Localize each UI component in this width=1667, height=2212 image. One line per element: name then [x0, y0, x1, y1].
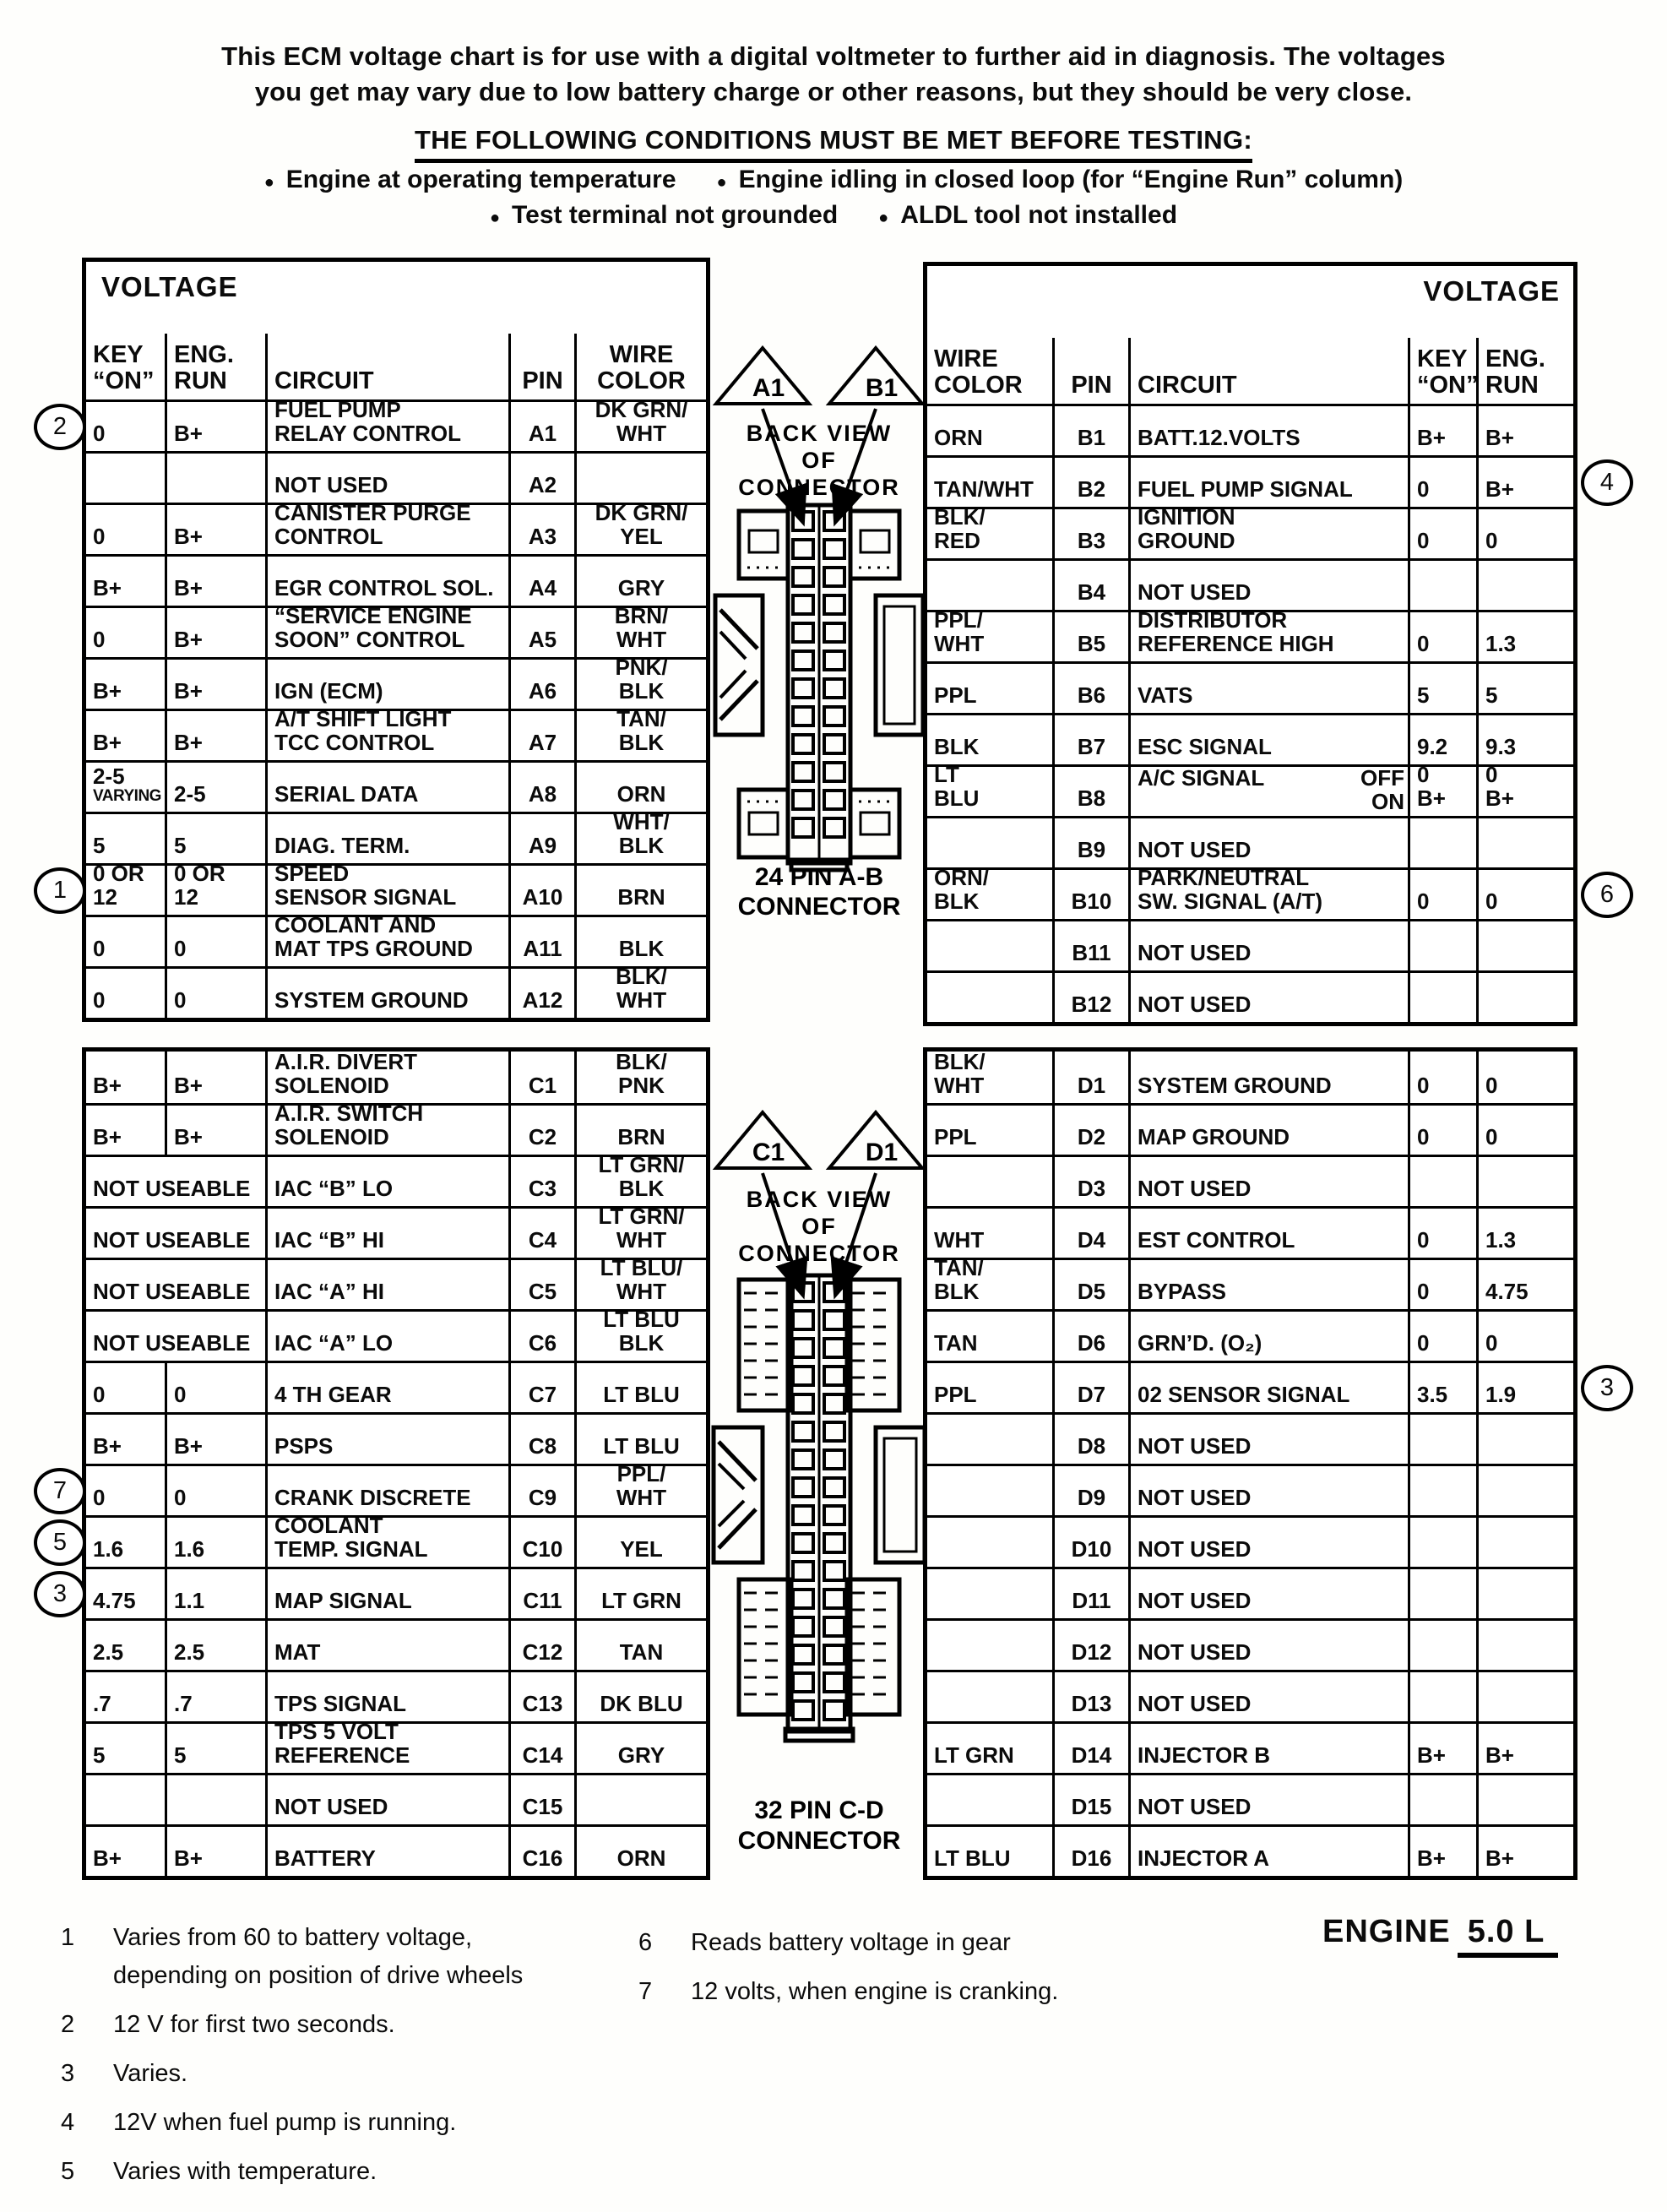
col-header-eng: ENG. RUN	[1476, 338, 1573, 404]
cell-a12-eng: 0	[165, 966, 265, 1018]
cell-c3-pin: C3	[508, 1155, 574, 1206]
cell-c11-pin: C11	[508, 1567, 574, 1618]
condition-text: Engine idling in closed loop (for “Engin…	[739, 166, 1404, 194]
cell-d11-wire	[927, 1567, 1052, 1618]
cd-back-view-2: OF	[801, 1214, 837, 1239]
cell-c3-circuit: IAC “B” LO	[265, 1155, 508, 1206]
cell-b11-pin: B11	[1052, 919, 1128, 970]
col-header-pin: PIN	[1052, 338, 1128, 404]
cell-a2-pin: A2	[508, 451, 574, 503]
cell-c12-key: 2.5	[86, 1618, 165, 1670]
cell-b6-pin: B6	[1052, 661, 1128, 713]
cell-c1-key: B+	[86, 1052, 165, 1103]
cell-a12-circuit: SYSTEM GROUND	[265, 966, 508, 1018]
ab-back-view-3: CONNECTOR	[738, 475, 900, 500]
cell-b8-key: 0 B+	[1408, 764, 1476, 816]
cell-c11-circuit: MAP SIGNAL	[265, 1567, 508, 1618]
col-header-eng: ENG. RUN	[165, 334, 265, 399]
cell-c9-pin: C9	[508, 1464, 574, 1515]
cell-c6-wire: LT BLU BLK	[574, 1309, 706, 1361]
cell-c12-circuit: MAT	[265, 1618, 508, 1670]
callout-circle-1-a10: 1	[34, 867, 86, 914]
cell-d3-key	[1408, 1155, 1476, 1206]
conditions-title: THE FOLLOWING CONDITIONS MUST BE MET BEF…	[415, 125, 1252, 163]
cell-b4-pin: B4	[1052, 558, 1128, 610]
cell-c7-key: 0	[86, 1361, 165, 1412]
cell-d1-circuit: SYSTEM GROUND	[1128, 1052, 1408, 1103]
cell-c16-eng: B+	[165, 1824, 265, 1876]
col-header-circuit: CIRCUIT	[1128, 338, 1408, 404]
connector-diagram-cd: C1 D1 BACK VIEW OF CONNECTOR	[709, 1102, 929, 1867]
cell-a1-pin: A1	[508, 399, 574, 451]
cell-a3-eng: B+	[165, 503, 265, 554]
footnote-text: Varies.	[113, 2055, 187, 2093]
cell-a12-wire: BLK/ WHT	[574, 966, 706, 1018]
cell-c3-wire: LT GRN/ BLK	[574, 1155, 706, 1206]
cell-d3-pin: D3	[1052, 1155, 1128, 1206]
cell-d6-key: 0	[1408, 1309, 1476, 1361]
footnote-text: 12 volts, when engine is cranking.	[691, 1973, 1058, 2011]
footnote-number: 6	[638, 1924, 667, 1962]
cell-c8-key: B+	[86, 1412, 165, 1464]
cell-d11-key	[1408, 1567, 1476, 1618]
col-header-pin: PIN	[508, 334, 574, 399]
footnote-1: 1Varies from 60 to battery voltage, depe…	[61, 1919, 635, 1995]
cell-b4-wire	[927, 558, 1052, 610]
callout-circle-6-b10: 6	[1581, 872, 1633, 918]
cell-b9-wire	[927, 816, 1052, 867]
footnote-text: 12 V for first two seconds.	[113, 2006, 395, 2044]
callout-circle-2-a1: 2	[34, 404, 86, 450]
col-header-circuit: CIRCUIT	[265, 334, 508, 399]
cell-a8-wire: ORN	[574, 760, 706, 812]
ab-connector-label-2: CONNECTOR	[738, 893, 901, 921]
triangle-a1-label: A1	[752, 374, 785, 402]
cell-a6-key: B+	[86, 657, 165, 709]
cell-a4-eng: B+	[165, 554, 265, 606]
cell-d13-eng	[1476, 1670, 1573, 1721]
col-header-key: KEY “ON”	[86, 334, 165, 399]
cell-b10-pin: B10	[1052, 867, 1128, 919]
cell-a12-pin: A12	[508, 966, 574, 1018]
cell-b2-wire: TAN/WHT	[927, 455, 1052, 507]
cell-b1-circuit: BATT.12.VOLTS	[1128, 404, 1408, 455]
cell-b11-eng	[1476, 919, 1573, 970]
cell-c13-circuit: TPS SIGNAL	[265, 1670, 508, 1721]
cell-c2-pin: C2	[508, 1103, 574, 1155]
cell-a9-circuit: DIAG. TERM.	[265, 812, 508, 863]
cell-a1-wire: DK GRN/ WHT	[574, 399, 706, 451]
cell-a10-wire: BRN	[574, 863, 706, 915]
cell-d9-eng	[1476, 1464, 1573, 1515]
col-header-key: KEY “ON”	[1408, 338, 1476, 404]
cell-c12-wire: TAN	[574, 1618, 706, 1670]
voltage-table-a: VOLTAGEKEY “ON”ENG. RUNCIRCUITPINWIRE CO…	[82, 258, 710, 1022]
cell-a6-pin: A6	[508, 657, 574, 709]
footnote-number: 3	[61, 2055, 90, 2093]
cell-b3-circuit: IGNITION GROUND	[1128, 507, 1408, 558]
cell-d5-circuit: BYPASS	[1128, 1258, 1408, 1309]
cell-d10-key	[1408, 1515, 1476, 1567]
cell-d3-circuit: NOT USED	[1128, 1155, 1408, 1206]
cell-b10-wire: ORN/ BLK	[927, 867, 1052, 919]
condition-bullet: ●Test terminal not grounded	[490, 201, 838, 230]
cell-d12-eng	[1476, 1618, 1573, 1670]
cell-b1-eng: B+	[1476, 404, 1573, 455]
cell-a7-wire: TAN/ BLK	[574, 709, 706, 760]
cell-b6-wire: PPL	[927, 661, 1052, 713]
cell-d8-key	[1408, 1412, 1476, 1464]
cell-d16-eng: B+	[1476, 1824, 1573, 1876]
col-header-wire: WIRE COLOR	[574, 334, 706, 399]
cell-b6-circuit: VATS	[1128, 661, 1408, 713]
cell-c7-eng: 0	[165, 1361, 265, 1412]
cell-a4-wire: GRY	[574, 554, 706, 606]
cell-b4-key	[1408, 558, 1476, 610]
cell-a3-wire: DK GRN/ YEL	[574, 503, 706, 554]
cell-b7-circuit: ESC SIGNAL	[1128, 713, 1408, 764]
cell-c2-wire: BRN	[574, 1103, 706, 1155]
footnote-number: 2	[61, 2006, 90, 2044]
engine-size-value: 5.0 L	[1458, 1914, 1559, 1958]
cell-c10-wire: YEL	[574, 1515, 706, 1567]
cell-c16-circuit: BATTERY	[265, 1824, 508, 1876]
condition-bullet: ●Engine at operating temperature	[264, 166, 676, 194]
cell-b2-key: 0	[1408, 455, 1476, 507]
cell-a1-eng: B+	[165, 399, 265, 451]
cell-d15-key	[1408, 1773, 1476, 1824]
cell-a11-eng: 0	[165, 915, 265, 966]
cell-d2-key: 0	[1408, 1103, 1476, 1155]
cell-b7-pin: B7	[1052, 713, 1128, 764]
voltage-table-d: BLK/ WHTD1SYSTEM GROUND00PPLD2MAP GROUND…	[923, 1047, 1577, 1880]
cell-d2-wire: PPL	[927, 1103, 1052, 1155]
cell-b1-pin: B1	[1052, 404, 1128, 455]
cell-d5-eng: 4.75	[1476, 1258, 1573, 1309]
cell-a10-circuit: SPEED SENSOR SIGNAL	[265, 863, 508, 915]
cell-c14-circuit: TPS 5 VOLT REFERENCE	[265, 1721, 508, 1773]
cell-d2-pin: D2	[1052, 1103, 1128, 1155]
cell-d10-wire	[927, 1515, 1052, 1567]
footnote-number: 1	[61, 1919, 90, 1995]
cell-b9-circuit: NOT USED	[1128, 816, 1408, 867]
cell-c13-key: .7	[86, 1670, 165, 1721]
cell-b5-circuit: DISTRIBUTOR REFERENCE HIGH	[1128, 610, 1408, 661]
cell-b12-wire	[927, 970, 1052, 1022]
cell-a6-eng: B+	[165, 657, 265, 709]
cell-d5-key: 0	[1408, 1258, 1476, 1309]
cell-d15-wire	[927, 1773, 1052, 1824]
cell-c2-circuit: A.I.R. SWITCH SOLENOID	[265, 1103, 508, 1155]
cell-b8-pin: B8	[1052, 764, 1128, 816]
cell-a6-wire: PNK/ BLK	[574, 657, 706, 709]
cell-b12-pin: B12	[1052, 970, 1128, 1022]
cell-a10-pin: A10	[508, 863, 574, 915]
cell-d16-circuit: INJECTOR A	[1128, 1824, 1408, 1876]
footnotes-left: 1Varies from 60 to battery voltage, depe…	[61, 1919, 635, 2202]
cell-b2-pin: B2	[1052, 455, 1128, 507]
voltage-heading: VOLTAGE	[86, 262, 706, 334]
cell-a8-key: 2-5VARYING	[86, 760, 165, 812]
cell-b3-key: 0	[1408, 507, 1476, 558]
cell-d10-pin: D10	[1052, 1515, 1128, 1567]
cell-b3-pin: B3	[1052, 507, 1128, 558]
cd-connector-body	[714, 1275, 925, 1741]
cell-a5-wire: BRN/ WHT	[574, 606, 706, 657]
cell-c11-key: 4.75	[86, 1567, 165, 1618]
cell-c9-key: 0	[86, 1464, 165, 1515]
cell-c13-eng: .7	[165, 1670, 265, 1721]
footnote-number: 4	[61, 2104, 90, 2142]
cell-d6-eng: 0	[1476, 1309, 1573, 1361]
footnote-text: 12V when fuel pump is running.	[113, 2104, 456, 2142]
cell-a2-circuit: NOT USED	[265, 451, 508, 503]
cell-d7-eng: 1.9	[1476, 1361, 1573, 1412]
cell-c2-eng: B+	[165, 1103, 265, 1155]
cell-d10-circuit: NOT USED	[1128, 1515, 1408, 1567]
cell-c15-circuit: NOT USED	[265, 1773, 508, 1824]
cell-b5-wire: PPL/ WHT	[927, 610, 1052, 661]
cell-b3-wire: BLK/ RED	[927, 507, 1052, 558]
cell-c6-key: NOT USEABLE	[86, 1309, 265, 1361]
cell-b3-eng: 0	[1476, 507, 1573, 558]
cell-c5-key: NOT USEABLE	[86, 1258, 265, 1309]
cd-connector-label-1: 32 PIN C-D	[754, 1796, 883, 1824]
cell-a5-eng: B+	[165, 606, 265, 657]
cell-c12-pin: C12	[508, 1618, 574, 1670]
cell-c5-pin: C5	[508, 1258, 574, 1309]
cell-d9-wire	[927, 1464, 1052, 1515]
cell-a7-pin: A7	[508, 709, 574, 760]
cell-b8-circuit: A/C SIGNALOFF ON	[1128, 764, 1408, 816]
cell-b12-circuit: NOT USED	[1128, 970, 1408, 1022]
cell-b2-eng: B+	[1476, 455, 1573, 507]
cell-d1-eng: 0	[1476, 1052, 1573, 1103]
voltage-table-b: VOLTAGEWIRE COLORPINCIRCUITKEY “ON”ENG. …	[923, 262, 1577, 1026]
cell-a8-eng: 2-5	[165, 760, 265, 812]
cell-c5-wire: LT BLU/ WHT	[574, 1258, 706, 1309]
footnote-4: 412V when fuel pump is running.	[61, 2104, 635, 2142]
cell-c9-wire: PPL/ WHT	[574, 1464, 706, 1515]
cell-a4-key: B+	[86, 554, 165, 606]
intro-text: This ECM voltage chart is for use with a…	[0, 39, 1667, 109]
cell-a11-wire: BLK	[574, 915, 706, 966]
cell-c8-wire: LT BLU	[574, 1412, 706, 1464]
cell-d9-key	[1408, 1464, 1476, 1515]
cell-c11-eng: 1.1	[165, 1567, 265, 1618]
cell-d4-pin: D4	[1052, 1206, 1128, 1258]
condition-bullet: ●Engine idling in closed loop (for “Engi…	[717, 166, 1404, 194]
engine-word: ENGINE	[1322, 1914, 1451, 1950]
cell-c1-pin: C1	[508, 1052, 574, 1103]
bullet-dot-icon: ●	[264, 173, 274, 193]
callout-circle-7-c9: 7	[34, 1468, 86, 1514]
ab-connector-body	[715, 505, 923, 870]
footnote-3: 3Varies.	[61, 2055, 635, 2093]
cell-b2-circuit: FUEL PUMP SIGNAL	[1128, 455, 1408, 507]
cell-c14-wire: GRY	[574, 1721, 706, 1773]
cell-d11-eng	[1476, 1567, 1573, 1618]
ecm-voltage-chart-page: This ECM voltage chart is for use with a…	[0, 0, 1667, 2212]
condition-bullet: ●ALDL tool not installed	[878, 201, 1177, 230]
cell-a3-circuit: CANISTER PURGE CONTROL	[265, 503, 508, 554]
cell-d7-wire: PPL	[927, 1361, 1052, 1412]
voltage-table-c: B+B+A.I.R. DIVERT SOLENOIDC1BLK/ PNKB+B+…	[82, 1047, 710, 1880]
connector-diagram-ab: A1 B1 BACK VIEW OF CONNECTOR	[709, 338, 929, 921]
cell-d1-key: 0	[1408, 1052, 1476, 1103]
cell-c7-circuit: 4 TH GEAR	[265, 1361, 508, 1412]
condition-text: Test terminal not grounded	[512, 201, 838, 230]
callout-circle-4-b2: 4	[1581, 459, 1633, 506]
cell-a7-eng: B+	[165, 709, 265, 760]
footnote-5: 5Varies with temperature.	[61, 2153, 635, 2191]
cell-b6-key: 5	[1408, 661, 1476, 713]
cell-b11-wire	[927, 919, 1052, 970]
cell-b7-wire: BLK	[927, 713, 1052, 764]
cell-c4-wire: LT GRN/ WHT	[574, 1206, 706, 1258]
engine-label: ENGINE 5.0 L	[1322, 1914, 1558, 1958]
cell-c10-pin: C10	[508, 1515, 574, 1567]
footnote-number: 5	[61, 2153, 90, 2191]
cell-d6-wire: TAN	[927, 1309, 1052, 1361]
cell-c4-circuit: IAC “B” HI	[265, 1206, 508, 1258]
condition-text: ALDL tool not installed	[900, 201, 1177, 230]
footnote-6: 6Reads battery voltage in gear	[638, 1924, 1162, 1962]
cell-b11-circuit: NOT USED	[1128, 919, 1408, 970]
cell-a2-key	[86, 451, 165, 503]
cell-b12-key	[1408, 970, 1476, 1022]
cell-d8-wire	[927, 1412, 1052, 1464]
condition-text: Engine at operating temperature	[286, 166, 676, 194]
cell-d13-circuit: NOT USED	[1128, 1670, 1408, 1721]
cell-c12-eng: 2.5	[165, 1618, 265, 1670]
voltage-heading: VOLTAGE	[927, 266, 1573, 338]
cell-c15-eng	[165, 1773, 265, 1824]
cell-d7-pin: D7	[1052, 1361, 1128, 1412]
cell-d14-eng: B+	[1476, 1721, 1573, 1773]
cell-c10-eng: 1.6	[165, 1515, 265, 1567]
cell-c1-wire: BLK/ PNK	[574, 1052, 706, 1103]
cell-c6-circuit: IAC “A” LO	[265, 1309, 508, 1361]
footnote-text: Varies from 60 to battery voltage, depen…	[113, 1919, 523, 1995]
cell-d14-circuit: INJECTOR B	[1128, 1721, 1408, 1773]
cell-a7-key: B+	[86, 709, 165, 760]
cell-b9-key	[1408, 816, 1476, 867]
cell-d3-wire	[927, 1155, 1052, 1206]
cell-a3-key: 0	[86, 503, 165, 554]
cell-d15-eng	[1476, 1773, 1573, 1824]
conditions-heading-row: THE FOLLOWING CONDITIONS MUST BE MET BEF…	[0, 125, 1667, 163]
cell-b8-wire: LT BLU	[927, 764, 1052, 816]
cell-a11-circuit: COOLANT AND MAT TPS GROUND	[265, 915, 508, 966]
cell-d1-pin: D1	[1052, 1052, 1128, 1103]
cell-c13-wire: DK BLU	[574, 1670, 706, 1721]
footnote-text: Reads battery voltage in gear	[691, 1924, 1011, 1962]
col-header-wire: WIRE COLOR	[927, 338, 1052, 404]
cell-c7-wire: LT BLU	[574, 1361, 706, 1412]
cell-d2-eng: 0	[1476, 1103, 1573, 1155]
cell-d12-pin: D12	[1052, 1618, 1128, 1670]
cell-d7-circuit: 02 SENSOR SIGNAL	[1128, 1361, 1408, 1412]
cell-a4-pin: A4	[508, 554, 574, 606]
cell-d16-key: B+	[1408, 1824, 1476, 1876]
cell-d12-circuit: NOT USED	[1128, 1618, 1408, 1670]
cell-d8-pin: D8	[1052, 1412, 1128, 1464]
cell-b4-circuit: NOT USED	[1128, 558, 1408, 610]
cell-b10-eng: 0	[1476, 867, 1573, 919]
bullet-dot-icon: ●	[878, 209, 888, 228]
cell-b4-eng	[1476, 558, 1573, 610]
cell-d15-pin: D15	[1052, 1773, 1128, 1824]
cell-c14-key: 5	[86, 1721, 165, 1773]
cell-a9-pin: A9	[508, 812, 574, 863]
cell-d1-wire: BLK/ WHT	[927, 1052, 1052, 1103]
cell-b1-key: B+	[1408, 404, 1476, 455]
footnote-text: Varies with temperature.	[113, 2153, 377, 2191]
cell-c15-wire	[574, 1773, 706, 1824]
cell-a11-pin: A11	[508, 915, 574, 966]
cell-c11-wire: LT GRN	[574, 1567, 706, 1618]
ab-connector-label-1: 24 PIN A-B	[755, 863, 883, 891]
conditions-bullets-line2: ●Test terminal not grounded●ALDL tool no…	[0, 201, 1667, 230]
footnotes-right: 6Reads battery voltage in gear712 volts,…	[638, 1924, 1162, 2022]
cell-a1-key: 0	[86, 399, 165, 451]
cell-d6-pin: D6	[1052, 1309, 1128, 1361]
cell-d2-circuit: MAP GROUND	[1128, 1103, 1408, 1155]
cell-d4-circuit: EST CONTROL	[1128, 1206, 1408, 1258]
cell-d5-wire: TAN/ BLK	[927, 1258, 1052, 1309]
cell-b9-pin: B9	[1052, 816, 1128, 867]
cell-c1-circuit: A.I.R. DIVERT SOLENOID	[265, 1052, 508, 1103]
cell-b10-key: 0	[1408, 867, 1476, 919]
cell-a3-pin: A3	[508, 503, 574, 554]
cell-a2-eng	[165, 451, 265, 503]
cell-d16-pin: D16	[1052, 1824, 1128, 1876]
cell-c1-eng: B+	[165, 1052, 265, 1103]
cell-c4-key: NOT USEABLE	[86, 1206, 265, 1258]
cell-a12-key: 0	[86, 966, 165, 1018]
cell-b1-wire: ORN	[927, 404, 1052, 455]
cell-b7-key: 9.2	[1408, 713, 1476, 764]
cell-c8-circuit: PSPS	[265, 1412, 508, 1464]
cell-a9-wire: WHT/ BLK	[574, 812, 706, 863]
cell-a5-key: 0	[86, 606, 165, 657]
cell-d8-eng	[1476, 1412, 1573, 1464]
cell-a4-circuit: EGR CONTROL SOL.	[265, 554, 508, 606]
cell-c6-pin: C6	[508, 1309, 574, 1361]
cell-b10-circuit: PARK/NEUTRAL SW. SIGNAL (A/T)	[1128, 867, 1408, 919]
cell-b5-pin: B5	[1052, 610, 1128, 661]
callout-circle-3-d7: 3	[1581, 1365, 1633, 1411]
bullet-dot-icon: ●	[717, 173, 727, 193]
cell-d14-pin: D14	[1052, 1721, 1128, 1773]
cell-c16-wire: ORN	[574, 1824, 706, 1876]
cell-c8-pin: C8	[508, 1412, 574, 1464]
cell-b9-eng	[1476, 816, 1573, 867]
cell-d8-circuit: NOT USED	[1128, 1412, 1408, 1464]
cell-c10-circuit: COOLANT TEMP. SIGNAL	[265, 1515, 508, 1567]
ab-back-view-2: OF	[801, 448, 837, 473]
triangle-c1-label: C1	[752, 1139, 785, 1166]
cell-c15-key	[86, 1773, 165, 1824]
callout-circle-5-c10: 5	[34, 1519, 86, 1566]
cell-c10-key: 1.6	[86, 1515, 165, 1567]
cell-d4-key: 0	[1408, 1206, 1476, 1258]
footnote-7: 712 volts, when engine is cranking.	[638, 1973, 1162, 2011]
cell-d14-wire: LT GRN	[927, 1721, 1052, 1773]
cell-c16-pin: C16	[508, 1824, 574, 1876]
cell-a9-key: 5	[86, 812, 165, 863]
